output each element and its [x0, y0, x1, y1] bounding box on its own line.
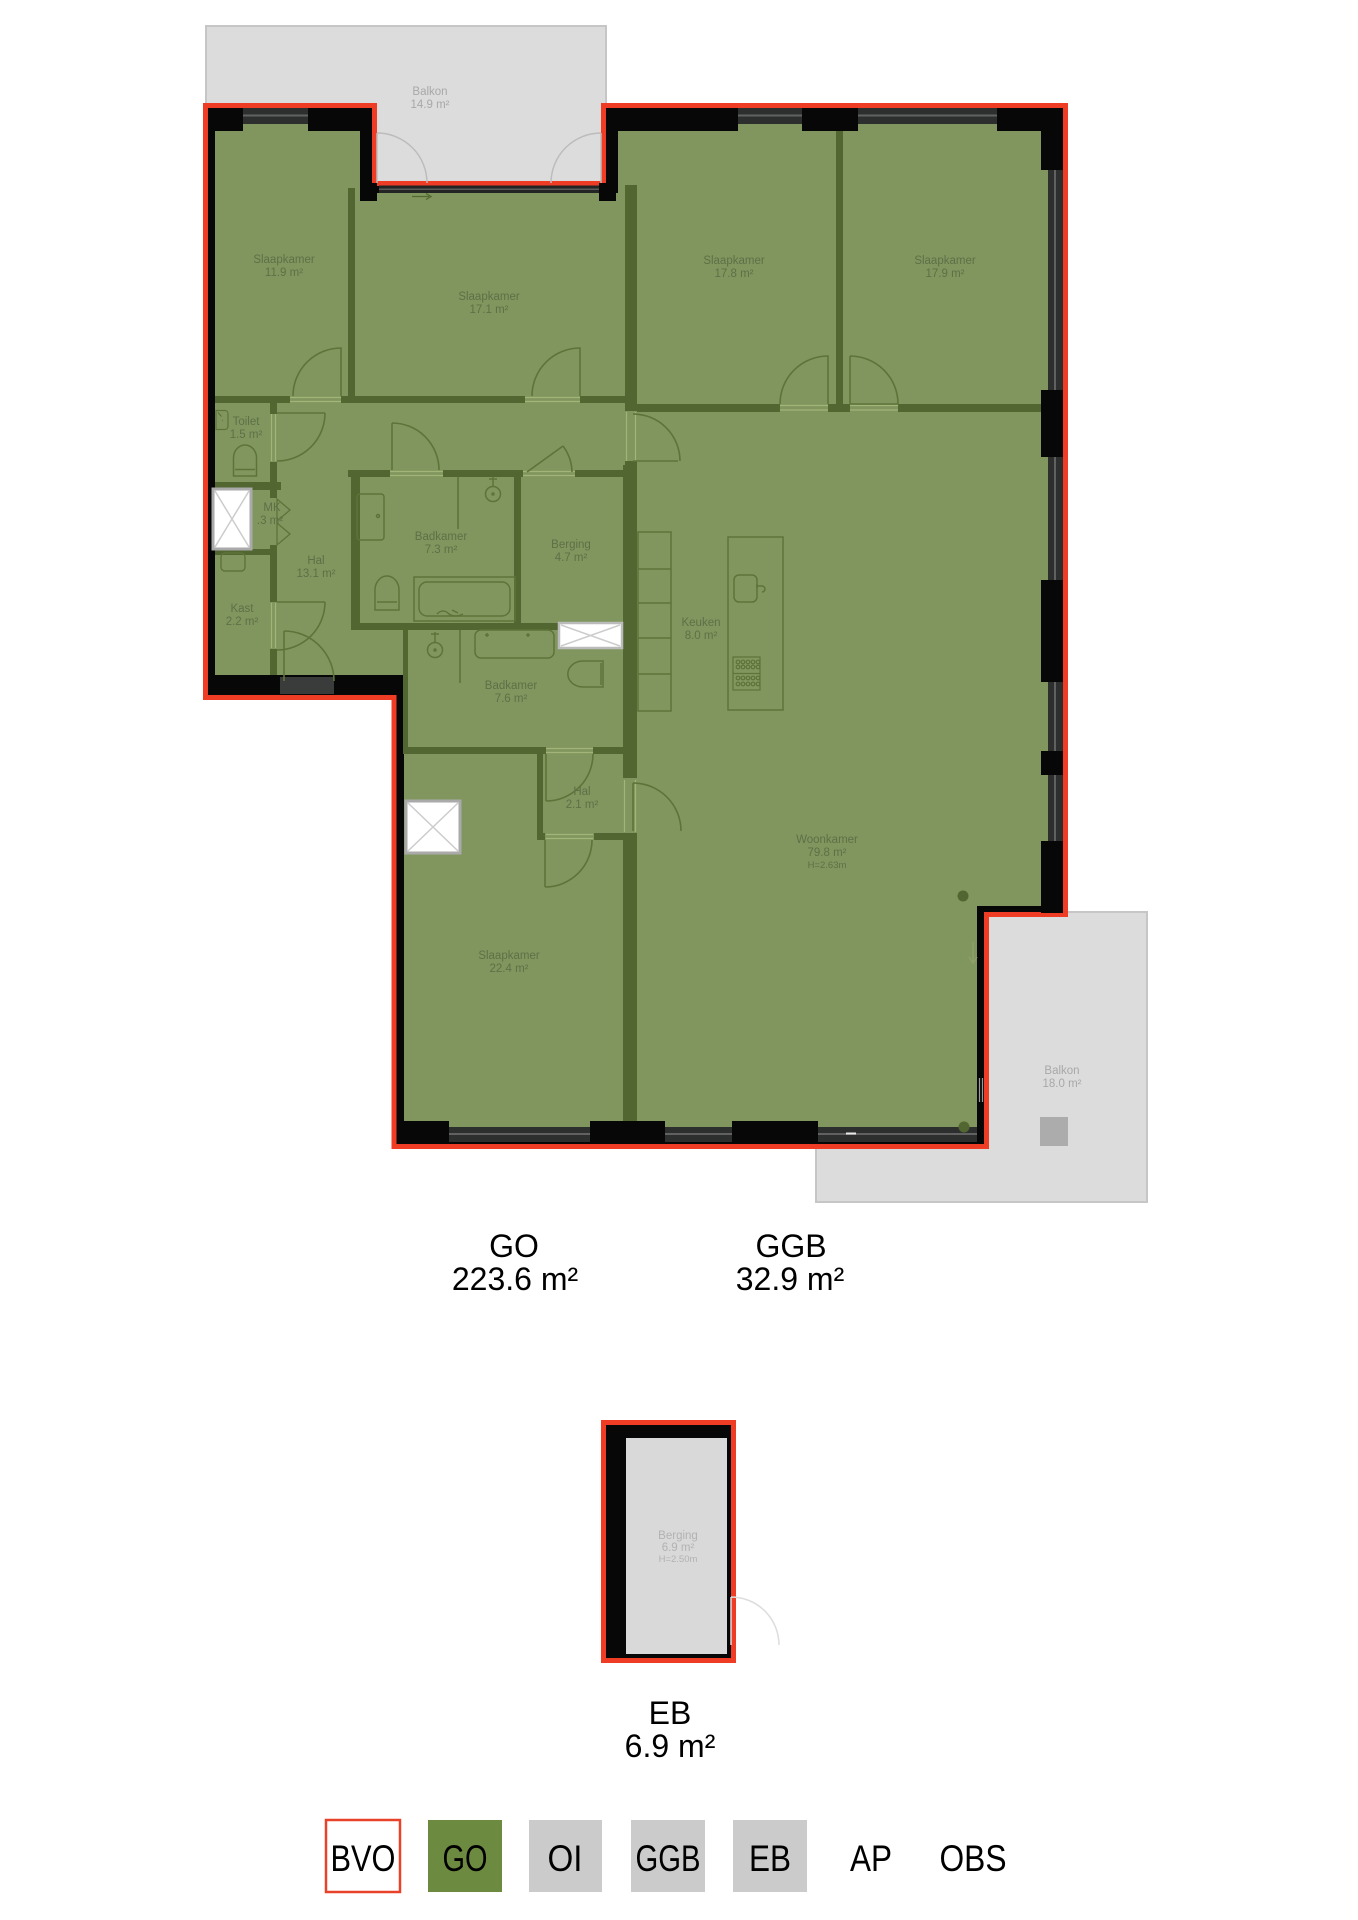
- svg-text:Hal: Hal: [573, 786, 590, 798]
- svg-text:Berging: Berging: [551, 539, 591, 551]
- svg-text:Hal: Hal: [307, 555, 324, 567]
- svg-text:Keuken: Keuken: [681, 617, 720, 629]
- svg-text:223.6 m²: 223.6 m²: [452, 1261, 579, 1297]
- svg-text:GGB: GGB: [636, 1838, 701, 1879]
- svg-text:2.2 m²: 2.2 m²: [226, 616, 259, 628]
- svg-text:Slaapkamer: Slaapkamer: [478, 950, 540, 962]
- svg-text:H=2.50m: H=2.50m: [659, 1554, 698, 1565]
- svg-text:Slaapkamer: Slaapkamer: [253, 254, 315, 266]
- svg-text:Berging: Berging: [658, 1530, 698, 1542]
- svg-text:Balkon: Balkon: [1044, 1065, 1079, 1077]
- svg-text:17.9 m²: 17.9 m²: [926, 268, 965, 280]
- svg-text:Kast: Kast: [230, 603, 254, 615]
- svg-text:22.4 m²: 22.4 m²: [490, 963, 529, 975]
- svg-text:MK: MK: [263, 502, 281, 514]
- svg-text:EB: EB: [649, 1695, 692, 1731]
- svg-text:.3 m²: .3 m²: [257, 515, 283, 527]
- svg-text:18.0 m²: 18.0 m²: [1043, 1078, 1082, 1090]
- svg-text:GGB: GGB: [755, 1228, 826, 1264]
- svg-text:Slaapkamer: Slaapkamer: [914, 255, 976, 267]
- svg-text:Slaapkamer: Slaapkamer: [703, 255, 765, 267]
- svg-text:32.9 m²: 32.9 m²: [736, 1261, 845, 1297]
- svg-text:EB: EB: [749, 1838, 791, 1879]
- svg-text:BVO: BVO: [331, 1838, 396, 1879]
- svg-text:17.8 m²: 17.8 m²: [715, 268, 754, 280]
- svg-text:8.0 m²: 8.0 m²: [685, 630, 718, 642]
- svg-text:14.9 m²: 14.9 m²: [411, 99, 450, 111]
- svg-text:Badkamer: Badkamer: [415, 531, 468, 543]
- svg-text:Toilet: Toilet: [233, 416, 261, 428]
- svg-text:OBS: OBS: [940, 1838, 1007, 1879]
- svg-text:AP: AP: [850, 1838, 892, 1879]
- svg-text:Slaapkamer: Slaapkamer: [458, 291, 520, 303]
- svg-text:Woonkamer: Woonkamer: [796, 834, 858, 846]
- svg-text:13.1 m²: 13.1 m²: [297, 568, 336, 580]
- svg-text:7.6 m²: 7.6 m²: [495, 693, 528, 705]
- svg-text:Balkon: Balkon: [412, 86, 447, 98]
- svg-text:GO: GO: [489, 1228, 539, 1264]
- svg-text:Badkamer: Badkamer: [485, 680, 538, 692]
- svg-text:GO: GO: [443, 1838, 488, 1879]
- svg-text:H=2.63m: H=2.63m: [808, 860, 847, 871]
- svg-text:4.7 m²: 4.7 m²: [555, 552, 588, 564]
- svg-text:6.9 m²: 6.9 m²: [625, 1728, 716, 1764]
- svg-text:17.1 m²: 17.1 m²: [470, 304, 509, 316]
- svg-text:7.3 m²: 7.3 m²: [425, 544, 458, 556]
- svg-text:2.1 m²: 2.1 m²: [566, 799, 599, 811]
- svg-text:79.8 m²: 79.8 m²: [808, 847, 847, 859]
- svg-text:OI: OI: [548, 1838, 583, 1879]
- svg-text:6.9 m²: 6.9 m²: [662, 1542, 695, 1554]
- svg-text:1.5 m²: 1.5 m²: [230, 429, 263, 441]
- svg-text:11.9 m²: 11.9 m²: [265, 267, 303, 279]
